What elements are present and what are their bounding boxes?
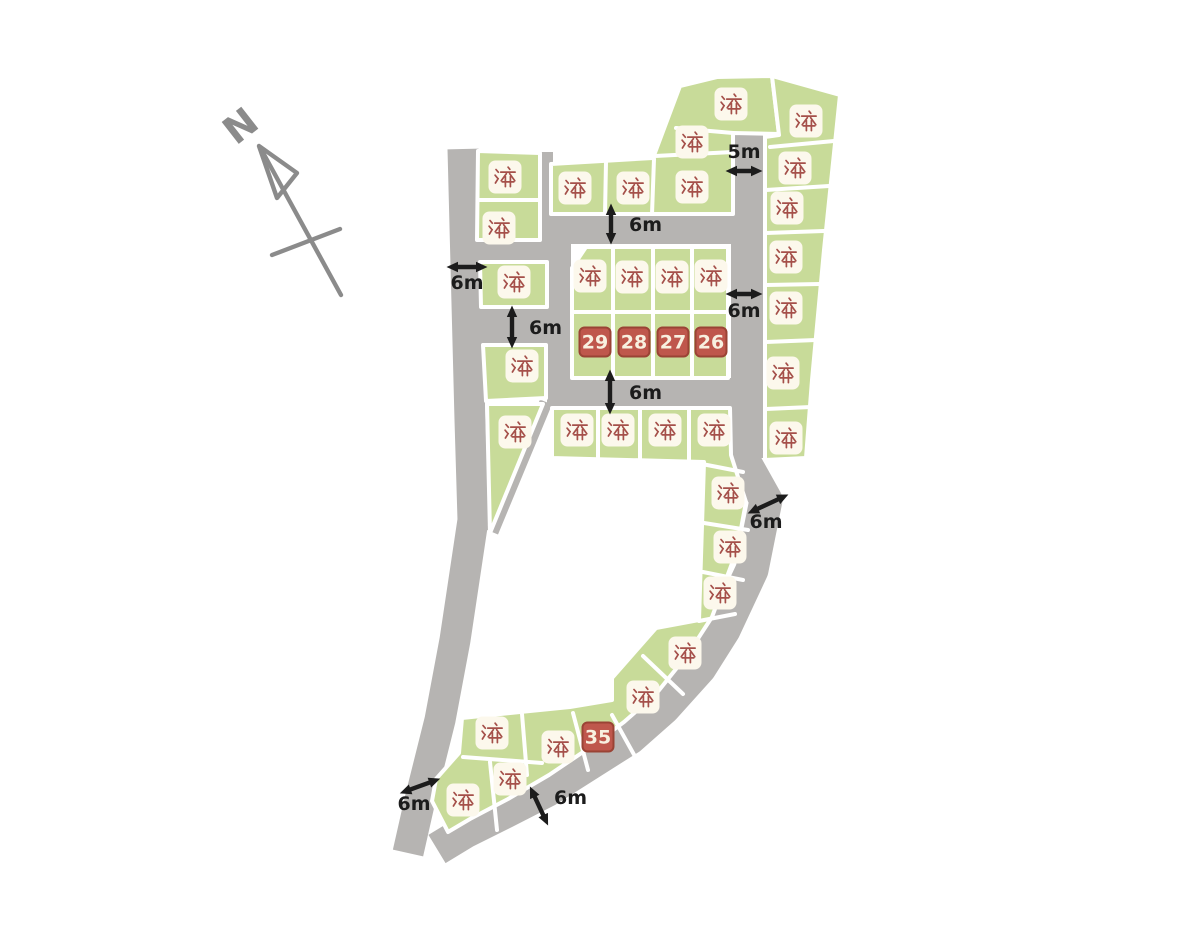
w-6m-right: 6m bbox=[726, 289, 763, 322]
lot-19-badge bbox=[616, 261, 649, 294]
lot-15-badge bbox=[770, 292, 803, 325]
lot-05-badge bbox=[499, 416, 532, 449]
lot-12-badge bbox=[779, 152, 812, 185]
lot-35-badge: 35 bbox=[583, 723, 614, 752]
lot-25-badge bbox=[698, 414, 731, 447]
lot-18-badge bbox=[574, 260, 607, 293]
available-lot-number: 28 bbox=[621, 332, 647, 354]
lot-11-badge bbox=[790, 105, 823, 138]
lot-30-badge bbox=[627, 681, 660, 714]
subdivision-map-page: N 2928272635 5m6m6m6m6m6m6m6m6m bbox=[0, 0, 1200, 938]
lot-26s-badge bbox=[712, 477, 745, 510]
lot-07-badge bbox=[617, 172, 650, 205]
lot-06-badge bbox=[559, 172, 592, 205]
lot-01-badge bbox=[489, 161, 522, 194]
road-width-label: 6m bbox=[727, 300, 760, 322]
lot-09-badge bbox=[715, 88, 748, 121]
lot-32-badge bbox=[542, 731, 575, 764]
lot-20-badge bbox=[656, 261, 689, 294]
road-width-label: 6m bbox=[450, 272, 483, 294]
available-lot-number: 26 bbox=[698, 332, 724, 354]
lot-26-badge: 26 bbox=[696, 328, 727, 357]
available-lot-number: 29 bbox=[582, 332, 608, 354]
w-5m-top: 5m bbox=[726, 141, 763, 176]
map-background bbox=[0, 0, 1200, 938]
lot-14-badge bbox=[770, 241, 803, 274]
road-width-label: 6m bbox=[629, 382, 662, 404]
lot-13-badge bbox=[771, 192, 804, 225]
lot-27-badge: 27 bbox=[658, 328, 689, 357]
road-width-label: 6m bbox=[554, 787, 587, 809]
available-lot-number: 35 bbox=[585, 727, 611, 749]
available-lot-number: 27 bbox=[660, 332, 686, 354]
lot-29s-badge bbox=[669, 637, 702, 670]
road-width-label: 6m bbox=[629, 214, 662, 236]
lot-04-badge bbox=[506, 350, 539, 383]
lot-17-badge bbox=[770, 422, 803, 455]
lot-23-badge bbox=[602, 414, 635, 447]
lot-27s-badge bbox=[714, 531, 747, 564]
site-plan-svg: N 2928272635 5m6m6m6m6m6m6m6m6m bbox=[0, 0, 1200, 938]
lot-02-badge bbox=[483, 212, 516, 245]
road-width-label: 6m bbox=[397, 793, 430, 815]
lot-08-badge bbox=[676, 171, 709, 204]
road-width-label: 6m bbox=[749, 511, 782, 533]
lot-31-badge bbox=[476, 717, 509, 750]
lot-03-badge bbox=[498, 266, 531, 299]
lot-28-badge: 28 bbox=[619, 328, 650, 357]
lot-28s-badge bbox=[704, 577, 737, 610]
road-width-label: 5m bbox=[727, 141, 760, 163]
lot-21-badge bbox=[695, 260, 728, 293]
lot-34-badge bbox=[447, 784, 480, 817]
lot-29-badge: 29 bbox=[580, 328, 611, 357]
lot-16-badge bbox=[767, 357, 800, 390]
lot-24-badge bbox=[649, 414, 682, 447]
lot-10-badge bbox=[676, 126, 709, 159]
road-width-label: 6m bbox=[529, 317, 562, 339]
w-6m-left: 6m bbox=[447, 262, 488, 294]
lot-22-badge bbox=[561, 414, 594, 447]
lot-33-badge bbox=[494, 763, 527, 796]
